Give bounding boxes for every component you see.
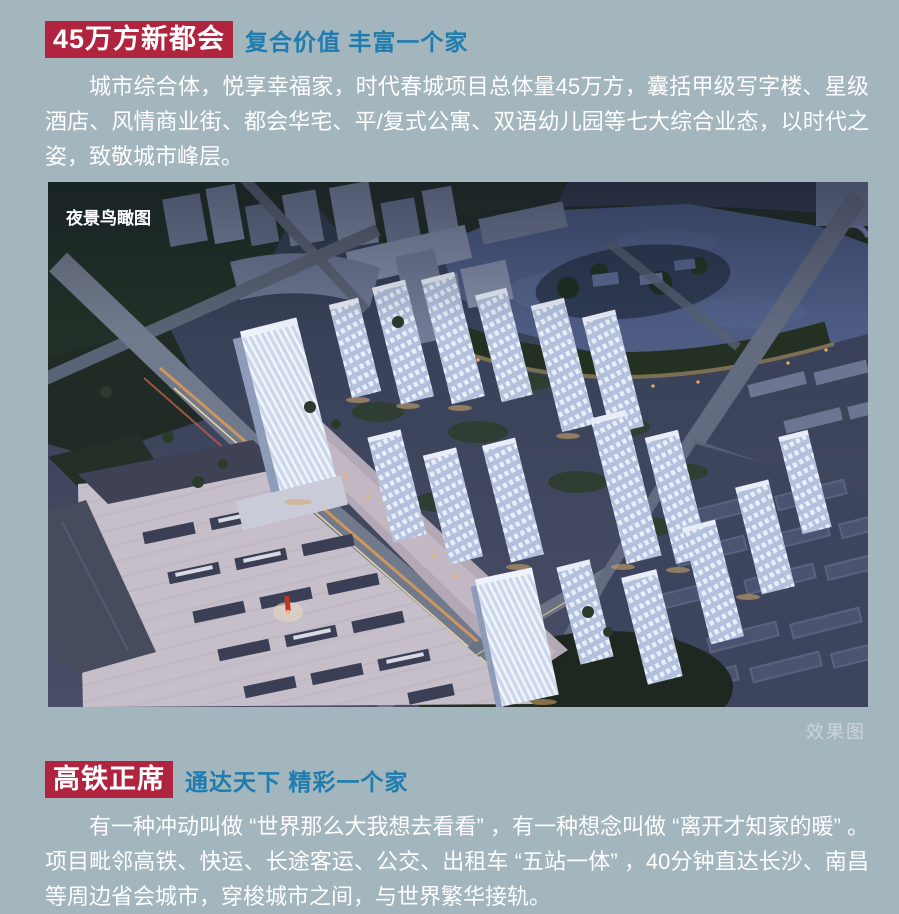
section2-paragraph: 有一种冲动叫做 “世界那么大我想去看看” ，有一种想念叫做 “离开才知家的暖” … — [0, 809, 899, 914]
render-caption: 效果图 — [48, 707, 868, 752]
render-label: 夜景鸟瞰图 — [65, 208, 151, 228]
aerial-night-render-image: 夜景鸟瞰图 — [48, 182, 868, 707]
section2-subheading: 通达天下 精彩一个家 — [185, 763, 408, 797]
render-figure: 夜景鸟瞰图 效果图 — [0, 182, 899, 752]
section2-heading-badge: 高铁正席 — [45, 761, 173, 798]
aerial-render-graphic: 夜景鸟瞰图 — [48, 182, 868, 707]
section2-heading-row: 高铁正席 通达天下 精彩一个家 — [45, 761, 899, 798]
section1-heading-row: 45万方新都会 复合价值 丰富一个家 — [45, 0, 899, 58]
section1-heading-badge: 45万方新都会 — [45, 21, 233, 58]
section1-subheading: 复合价值 丰富一个家 — [245, 23, 468, 57]
section1-paragraph: 城市综合体，悦享幸福家，时代春城项目总体量45万方，囊括甲级写字楼、星级酒店、风… — [0, 69, 899, 174]
promo-page: 45万方新都会 复合价值 丰富一个家 城市综合体，悦享幸福家，时代春城项目总体量… — [0, 0, 899, 889]
